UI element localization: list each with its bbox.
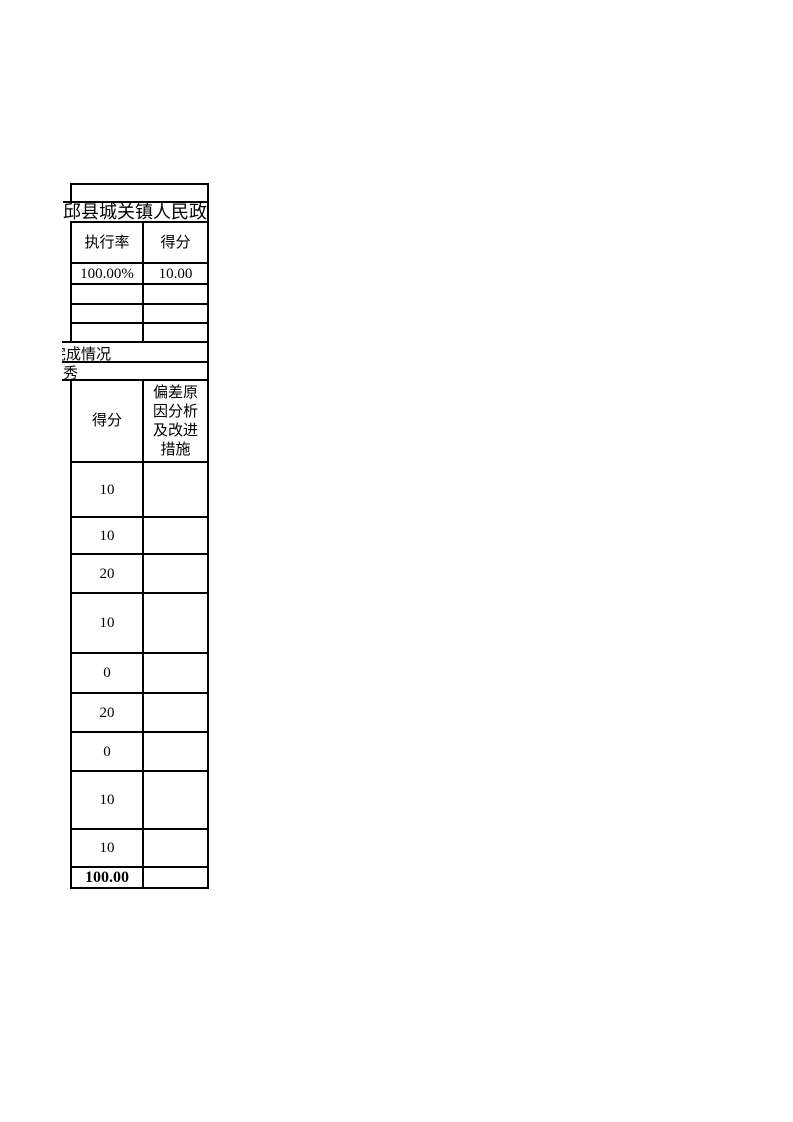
completion-status-row: 完成情况 <box>62 343 209 361</box>
table-border-line <box>70 283 209 285</box>
score-row-value: 0 <box>70 654 144 692</box>
completion-status-text: 完成情况 <box>62 343 111 361</box>
score-row-value: 20 <box>70 555 144 592</box>
execution-rate-value: 100.00% <box>70 264 144 283</box>
deviation-header-text: 偏差原因分析及改进措施 <box>152 384 200 460</box>
score-row-value: 10 <box>70 518 144 553</box>
total-score: 100.00 <box>70 868 144 887</box>
score-row-value: 0 <box>70 733 144 770</box>
header-execution-rate: 执行率 <box>70 223 144 262</box>
header-score: 得分 <box>144 223 207 262</box>
score-table-header-score: 得分 <box>70 381 144 461</box>
table-border-line <box>70 183 209 185</box>
table-border-line <box>70 887 209 889</box>
score-table-header-deviation: 偏差原因分析及改进措施 <box>144 381 207 462</box>
score-value: 10.00 <box>144 264 207 283</box>
table-border-line <box>70 303 209 305</box>
score-row-value: 10 <box>70 594 144 652</box>
rating-row: 秀 <box>62 362 209 379</box>
rating-text: 秀 <box>63 362 78 379</box>
score-row-value: 20 <box>70 694 144 731</box>
score-row-value: 10 <box>70 463 144 516</box>
page-title-text: 邱县城关镇人民政府 <box>63 203 209 222</box>
score-row-value: 10 <box>70 772 144 828</box>
table-border-line <box>207 183 209 889</box>
score-row-value: 10 <box>70 830 144 866</box>
spreadsheet-page: 邱县城关镇人民政府 执行率 得分 100.00% 10.00 完成情况 秀 得分… <box>0 0 793 1122</box>
page-title: 邱县城关镇人民政府 <box>62 203 209 222</box>
table-border-line <box>70 183 72 201</box>
table-border-line <box>70 322 209 324</box>
